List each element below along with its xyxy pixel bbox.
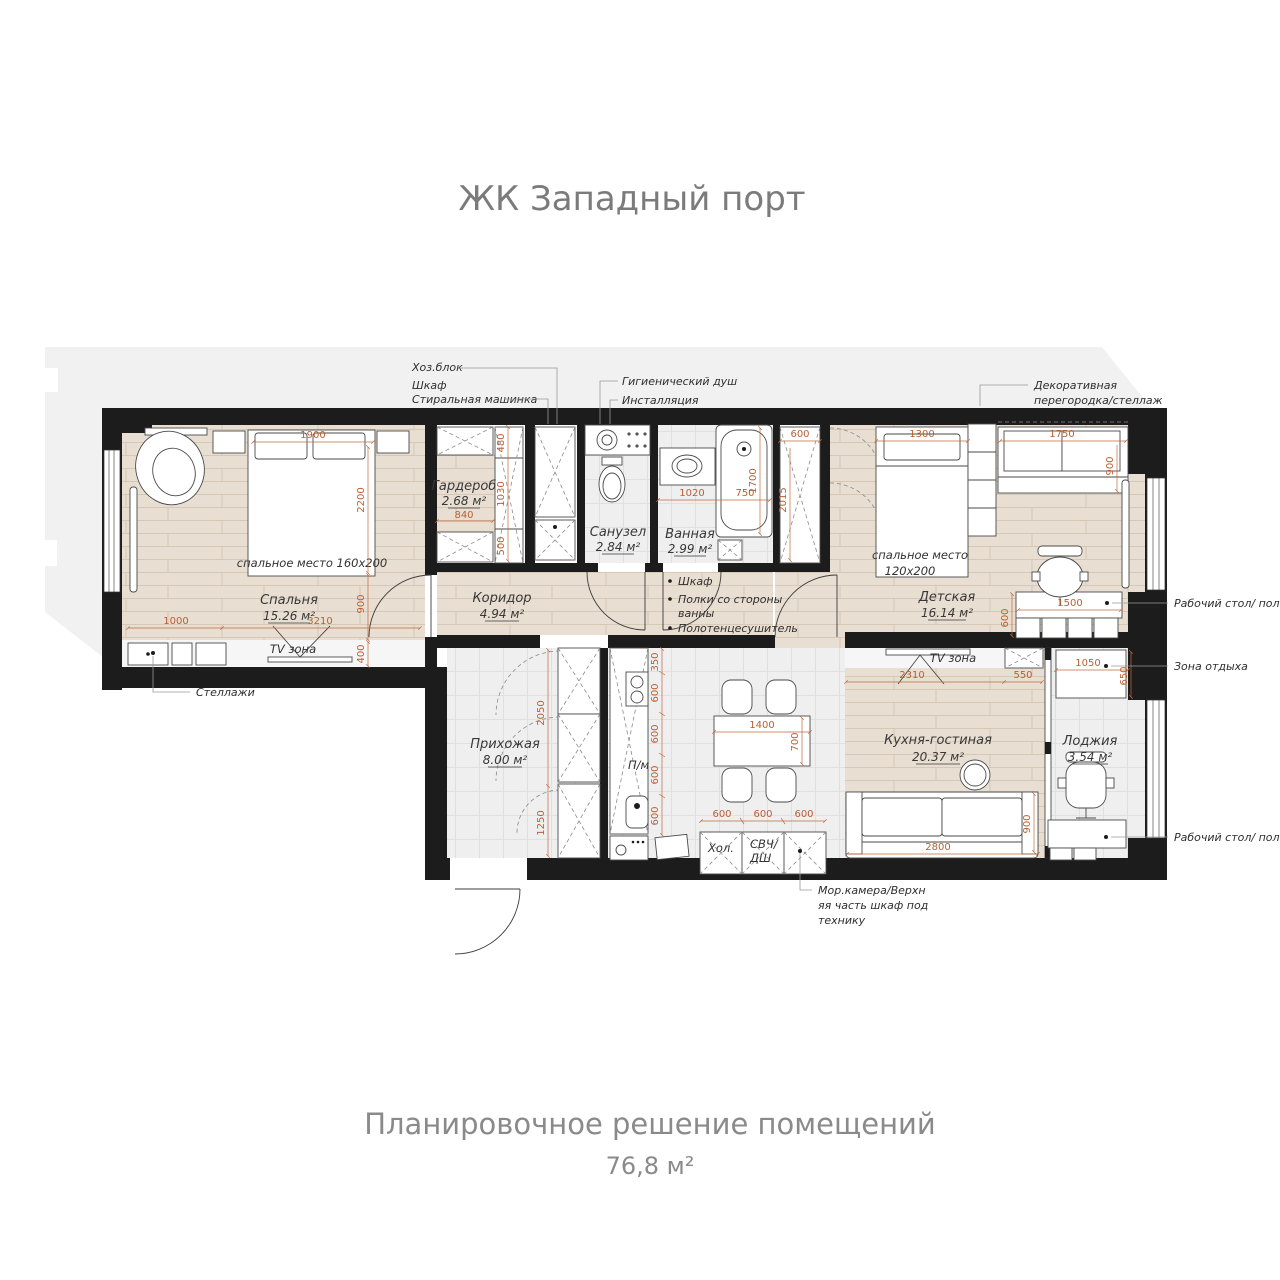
hob — [626, 672, 648, 706]
chair — [766, 680, 796, 714]
callout-washing-machine: Стиральная машинка — [412, 393, 538, 406]
bathtub — [716, 425, 772, 537]
dim: 1020 — [679, 488, 704, 499]
page-title: ЖК Западный порт — [458, 179, 805, 219]
room-area-living: 20.37 м² — [912, 750, 964, 764]
shelf-column — [968, 424, 996, 536]
callout-bath-shelves-2: ванны — [678, 607, 715, 620]
dim: 2200 — [356, 487, 367, 512]
caption-line1: Планировочное решение помещений — [364, 1107, 936, 1141]
dim: 600 — [650, 724, 661, 743]
bed-child-label-1: спальное место — [872, 548, 968, 562]
pillow — [255, 433, 307, 459]
room-name-corridor: Коридор — [472, 591, 531, 606]
microwave-label: СВЧ/ — [750, 837, 779, 851]
tv-zone-label: TV зона — [930, 651, 976, 665]
nightstand-left — [213, 431, 245, 453]
dim: 2015 — [778, 487, 789, 512]
tv-shelf — [268, 657, 352, 662]
room-name-wc: Санузел — [590, 525, 646, 540]
room-name-hall: Прихожая — [470, 737, 540, 752]
window-loggia — [1147, 700, 1165, 838]
caption-line2: 76,8 м² — [606, 1152, 695, 1180]
chair — [722, 680, 752, 714]
callout-freezer-1: Мор.камера/Верхн — [818, 884, 926, 897]
hall-closets — [558, 648, 600, 858]
dim: 1030 — [496, 481, 507, 506]
dim: 650 — [1119, 666, 1130, 685]
callout-freezer-3: технику — [818, 914, 866, 927]
dim: 900 — [1105, 456, 1116, 475]
callout-decor-partition-1: Декоративная — [1033, 379, 1117, 392]
dim: 1300 — [909, 429, 934, 440]
room-area-loggia: 3.54 м² — [1068, 750, 1113, 764]
room-name-bedroom: Спальня — [260, 593, 318, 608]
chair — [722, 768, 752, 802]
kitchen-sink — [626, 796, 648, 828]
dim: 1500 — [1057, 598, 1082, 609]
dim: 900 — [1022, 814, 1033, 833]
callout-closet-top: Шкаф — [412, 379, 447, 392]
fridge-label: Хол. — [707, 841, 734, 855]
room-name-bath: Ванная — [665, 527, 715, 542]
room-area-children: 16.14 м² — [921, 606, 973, 620]
radiator-bedroom — [130, 487, 137, 592]
utility-closet — [535, 427, 575, 560]
dim: 700 — [790, 732, 801, 751]
dim: 1050 — [1075, 658, 1100, 669]
fridge-cabinet: Хол. СВЧ/ ДШ — [700, 832, 826, 874]
toilet — [599, 457, 625, 502]
dim: 1900 — [300, 430, 325, 441]
loggia-desk — [1048, 820, 1126, 848]
dim: 350 — [650, 652, 661, 671]
dim: 480 — [496, 433, 507, 452]
room-name-living: Кухня-гостиная — [884, 733, 992, 748]
callout-rest-zone: Зона отдыха — [1174, 660, 1248, 673]
callout-freezer-2: яя часть шкаф под — [818, 899, 928, 912]
door-entry — [455, 889, 520, 954]
callout-hygienic-shower: Гигиенический душ — [622, 375, 737, 388]
dim: 600 — [790, 429, 809, 440]
oven-drawer-label: ДШ — [749, 851, 771, 865]
dim: 550 — [1013, 670, 1032, 681]
dim: 500 — [496, 536, 507, 555]
dim: 400 — [356, 644, 367, 663]
radiator-children — [1122, 480, 1129, 588]
room-name-children: Детская — [918, 590, 976, 605]
dim: 1000 — [163, 616, 188, 627]
room-area-bath: 2.99 м² — [668, 542, 713, 556]
dim: 600 — [794, 809, 813, 820]
bath-sink — [672, 455, 702, 477]
callout-decor-partition-2: перегородка/стеллаж — [1034, 394, 1163, 407]
room-area-hall: 8.00 м² — [483, 753, 528, 767]
dim: 600 — [753, 809, 772, 820]
bed-master-label: спальное место 160x200 — [237, 556, 387, 570]
dishwasher-label: П/м — [628, 758, 650, 772]
dim: 3210 — [307, 616, 332, 627]
dim: 1700 — [748, 468, 759, 493]
dim: 600 — [712, 809, 731, 820]
dim: 600 — [1000, 608, 1011, 627]
callout-bath-shelves-1: Полки со стороны — [678, 593, 783, 606]
wc-counter — [585, 425, 650, 455]
dim: 600 — [650, 683, 661, 702]
dim: 2310 — [899, 670, 924, 681]
floor-plan-page: ЖК Западный порт — [0, 0, 1280, 1280]
dim: 1400 — [749, 720, 774, 731]
dim: 900 — [356, 594, 367, 613]
bed-child: спальное место 120x200 — [872, 427, 968, 578]
dim: 600 — [650, 806, 661, 825]
tv-zone-label: TV зона — [270, 642, 316, 656]
dim: 2800 — [925, 842, 950, 853]
cabinet-x-living — [1005, 648, 1043, 668]
callout-corridor-closet: Шкаф — [678, 575, 713, 588]
window-bedroom — [104, 450, 120, 592]
dim: 1750 — [1049, 429, 1074, 440]
room-area-corridor: 4.94 м² — [480, 607, 525, 621]
dim: 600 — [650, 765, 661, 784]
dim: 2050 — [536, 700, 547, 725]
room-area-wc: 2.84 м² — [596, 540, 641, 554]
coffee-table — [960, 760, 990, 790]
bed-child-label-2: 120x200 — [885, 564, 936, 578]
callout-desk-shelves-1: Рабочий стол/ полки — [1174, 597, 1280, 610]
callout-installation: Инсталляция — [622, 394, 699, 407]
callout-utility: Хоз.блок — [411, 361, 463, 374]
callout-shelving: Стеллажи — [196, 686, 255, 699]
room-name-wardrobe: Гардероб — [432, 479, 497, 494]
chair — [766, 768, 796, 802]
dim: 840 — [454, 510, 473, 521]
callout-towel-rail: Полотенцесушитель — [678, 622, 798, 635]
floor-plan: ЖК Западный порт — [0, 0, 1280, 1280]
callout-desk-shelves-2: Рабочий стол/ полки — [1174, 831, 1280, 844]
nightstand-right — [377, 431, 409, 453]
room-area-wardrobe: 2.68 м² — [442, 494, 487, 508]
window-children — [1147, 478, 1165, 590]
kitchen-cabinet-run: П/м — [610, 648, 650, 834]
dim: 1250 — [536, 810, 547, 835]
room-name-loggia: Лоджия — [1062, 734, 1118, 749]
